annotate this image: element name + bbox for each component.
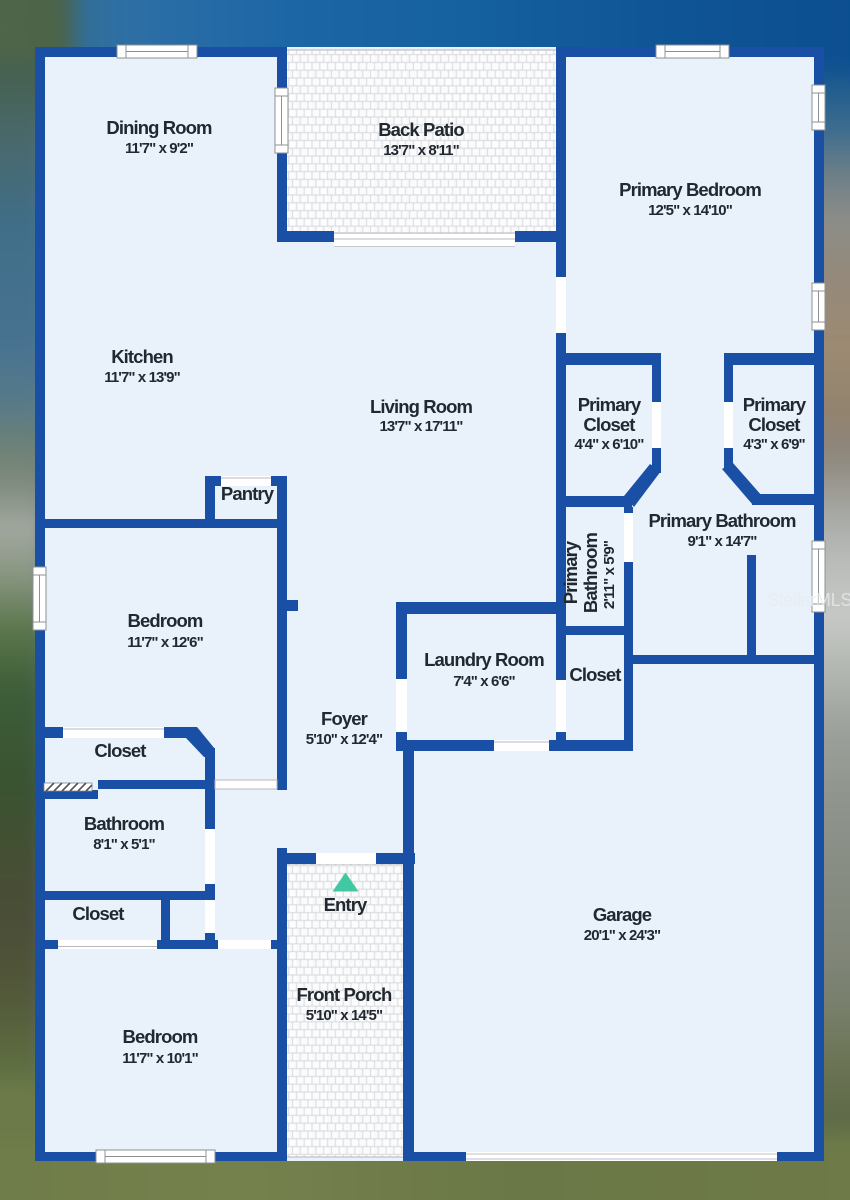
svg-text:11'7" x 10'1": 11'7" x 10'1" [122, 1050, 198, 1067]
svg-text:Bathroom: Bathroom [84, 813, 165, 834]
svg-text:Front Porch: Front Porch [297, 984, 393, 1005]
svg-text:Laundry Room: Laundry Room [424, 649, 544, 670]
svg-text:Kitchen: Kitchen [111, 346, 173, 367]
svg-text:7'4" x 6'6": 7'4" x 6'6" [453, 673, 515, 690]
svg-text:11'7" x 9'2": 11'7" x 9'2" [125, 140, 194, 157]
svg-text:9'1" x 14'7": 9'1" x 14'7" [688, 533, 758, 550]
svg-text:Dining Room: Dining Room [106, 117, 212, 138]
svg-text:13'7" x 8'11": 13'7" x 8'11" [383, 142, 459, 159]
svg-text:11'7" x 13'9": 11'7" x 13'9" [104, 369, 180, 386]
svg-text:StellarMLS: StellarMLS [767, 590, 850, 610]
svg-text:Living Room: Living Room [370, 396, 473, 417]
svg-text:Bathroom: Bathroom [580, 532, 601, 613]
svg-text:Foyer: Foyer [321, 708, 368, 729]
svg-text:Closet: Closet [569, 664, 621, 685]
svg-text:2'11" x 5'9": 2'11" x 5'9" [601, 540, 618, 609]
svg-text:20'1" x 24'3": 20'1" x 24'3" [584, 927, 661, 944]
svg-text:Primary: Primary [578, 394, 642, 415]
svg-text:Garage: Garage [593, 904, 652, 925]
svg-text:Bedroom: Bedroom [123, 1026, 198, 1047]
svg-text:12'5" x 14'10": 12'5" x 14'10" [648, 202, 733, 219]
svg-text:Closet: Closet [72, 903, 124, 924]
svg-text:13'7" x 17'11": 13'7" x 17'11" [379, 418, 463, 435]
svg-text:5'10" x 12'4": 5'10" x 12'4" [306, 731, 383, 748]
svg-text:Entry: Entry [324, 894, 368, 915]
svg-text:4'3" x 6'9": 4'3" x 6'9" [743, 436, 805, 453]
svg-text:Closet: Closet [94, 740, 146, 761]
svg-text:Bedroom: Bedroom [128, 610, 203, 631]
svg-text:8'1" x 5'1": 8'1" x 5'1" [93, 836, 155, 853]
svg-text:Closet: Closet [748, 414, 800, 435]
svg-text:Primary: Primary [560, 540, 581, 604]
svg-text:Pantry: Pantry [221, 483, 275, 504]
svg-text:Closet: Closet [583, 414, 635, 435]
svg-text:11'7" x 12'6": 11'7" x 12'6" [127, 634, 203, 651]
svg-text:Primary: Primary [743, 394, 807, 415]
svg-text:Primary Bedroom: Primary Bedroom [619, 179, 761, 200]
svg-text:Primary Bathroom: Primary Bathroom [648, 510, 795, 531]
svg-text:4'4" x 6'10": 4'4" x 6'10" [575, 436, 645, 453]
svg-text:5'10" x 14'5": 5'10" x 14'5" [306, 1007, 383, 1024]
svg-text:Back Patio: Back Patio [378, 119, 464, 140]
